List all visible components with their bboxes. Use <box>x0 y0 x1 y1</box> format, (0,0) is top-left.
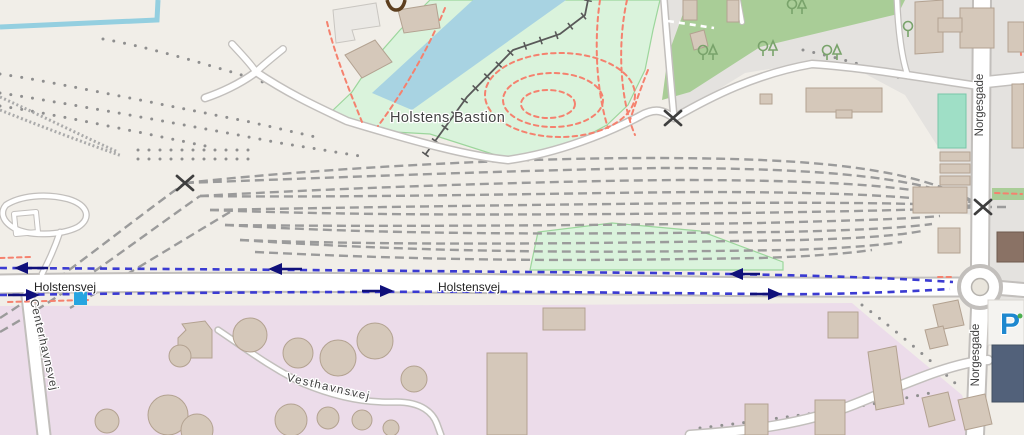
map-viewport[interactable]: Holstens Bastion Holstensvej Holstensvej… <box>0 0 1024 435</box>
sports-pitch <box>938 94 966 148</box>
park-name-label: Holstens Bastion <box>390 110 505 126</box>
street-label-norgesgade-top: Norgesgade <box>974 74 986 137</box>
dark-building <box>992 345 1024 402</box>
street-label-holstensvej-left: Holstensvej <box>34 280 96 294</box>
street-label-norgesgade-bottom: Norgesgade <box>970 324 982 387</box>
parking-icon: P <box>1000 308 1020 341</box>
green-dot-icon <box>1018 314 1023 319</box>
street-label-holstensvej-center: Holstensvej <box>438 280 500 294</box>
osm-map-canvas[interactable]: Holstens Bastion Holstensvej Holstensvej… <box>0 0 1024 435</box>
